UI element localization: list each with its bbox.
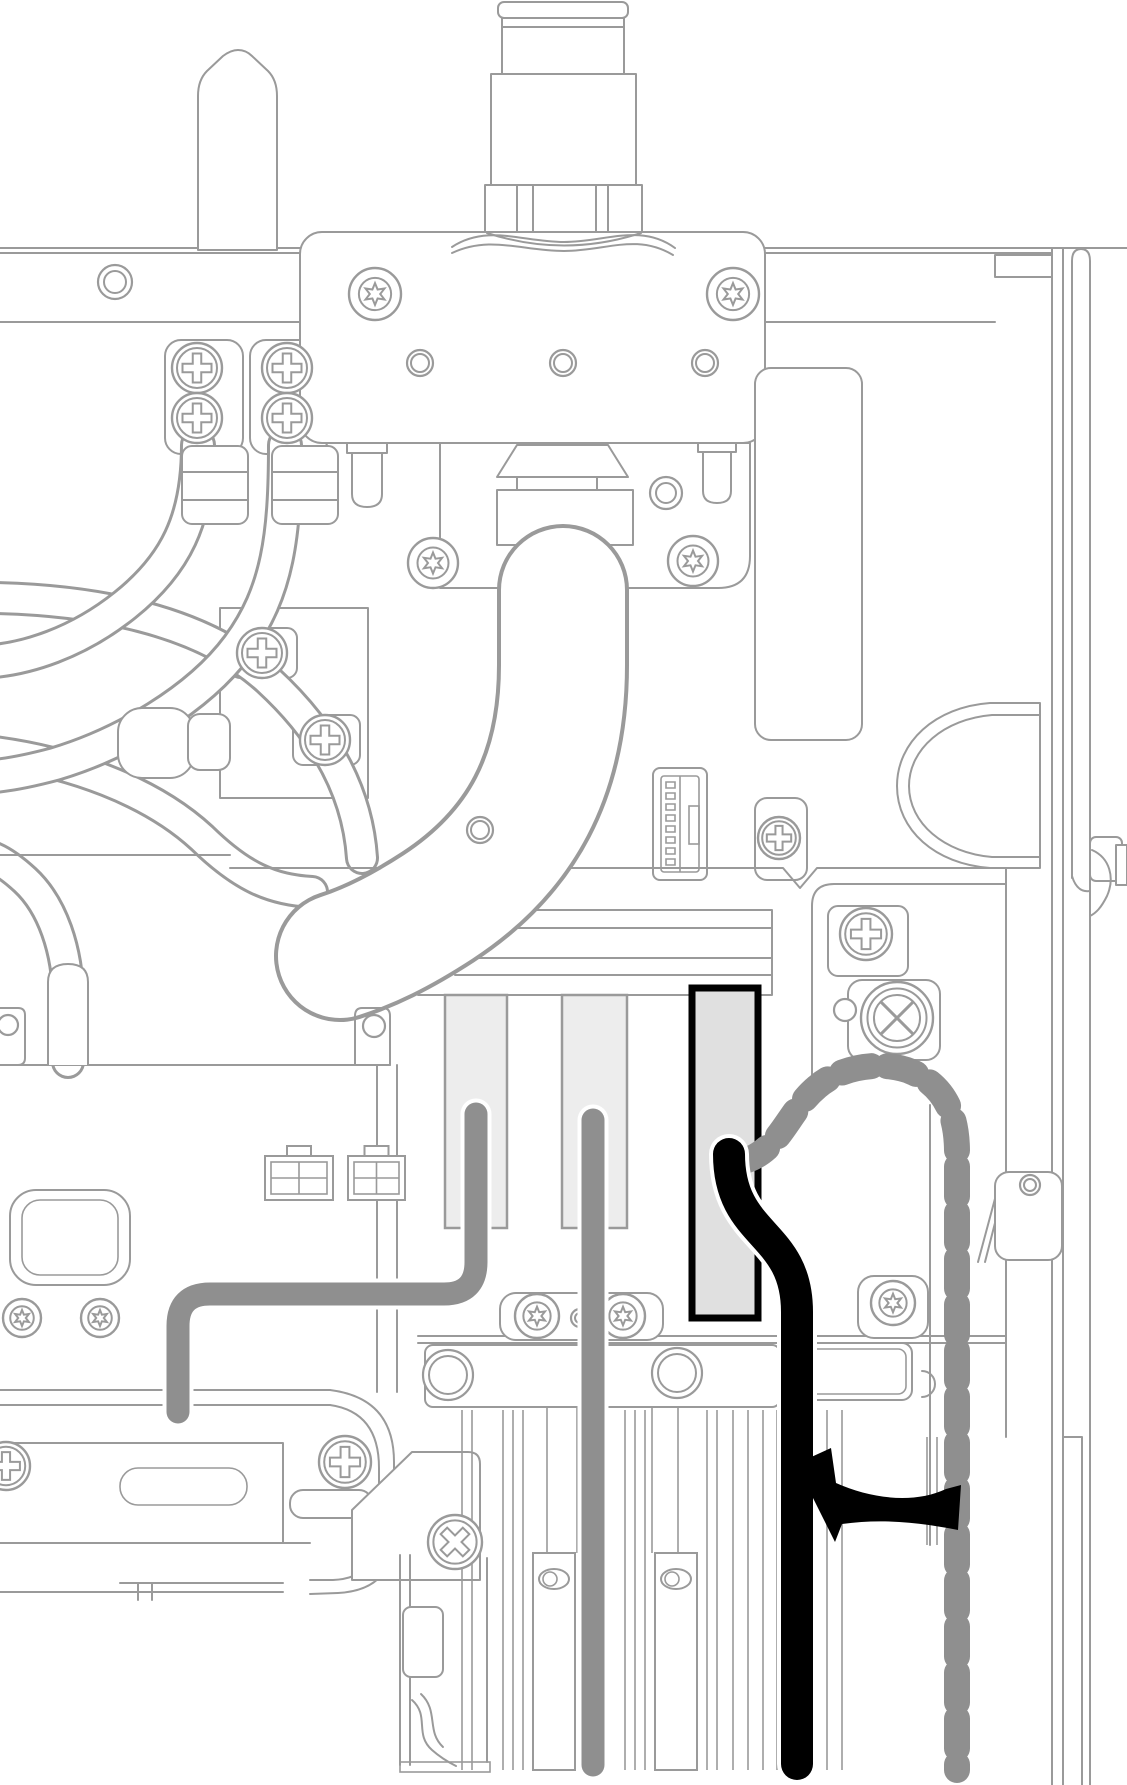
pin-header-connector bbox=[653, 768, 707, 880]
bigx-screw bbox=[861, 982, 933, 1054]
ring-hole bbox=[550, 350, 576, 376]
phillips-screw bbox=[237, 628, 287, 678]
mounting-bracket bbox=[300, 232, 765, 443]
ring-hole bbox=[423, 1350, 473, 1400]
phillips-screw bbox=[300, 715, 350, 765]
phillips-screw bbox=[0, 1442, 30, 1490]
phillips-screw bbox=[262, 393, 312, 443]
torx-screw bbox=[3, 1299, 41, 1337]
wide-hose bbox=[340, 590, 563, 956]
quick-connect-coupling bbox=[485, 2, 642, 232]
torx-screw bbox=[81, 1299, 119, 1337]
phillips-screw bbox=[172, 393, 222, 443]
torx-screw bbox=[515, 1294, 559, 1338]
cards-layer bbox=[533, 1553, 697, 1770]
card-guide bbox=[533, 1553, 575, 1770]
torx-screw bbox=[707, 268, 759, 320]
torx-screw bbox=[668, 536, 718, 586]
ring-hole bbox=[407, 350, 433, 376]
ring-hole bbox=[652, 1348, 702, 1398]
ring-hole bbox=[98, 265, 132, 299]
phillips-screw bbox=[758, 817, 800, 859]
bottom-connector-assembly bbox=[0, 1390, 490, 1772]
phillips-screw bbox=[840, 908, 892, 960]
torx-screw bbox=[349, 268, 401, 320]
d-shaped-handle bbox=[897, 703, 1040, 868]
ring-hole bbox=[650, 477, 682, 509]
torx-screw bbox=[871, 1281, 915, 1325]
phillips-screw bbox=[319, 1436, 371, 1488]
card-guide bbox=[655, 1553, 697, 1770]
chassis-latch bbox=[1090, 837, 1127, 916]
ring-hole bbox=[692, 350, 718, 376]
cross4-screw bbox=[428, 1515, 482, 1569]
connectors-layer bbox=[265, 1146, 405, 1200]
ring-hole bbox=[363, 1015, 385, 1037]
ring-hole bbox=[0, 1015, 18, 1035]
phillips-screw bbox=[172, 343, 222, 393]
side-panel bbox=[755, 368, 862, 740]
ring-hole bbox=[467, 817, 493, 843]
ring-hole bbox=[834, 999, 856, 1021]
left-lower-panel bbox=[0, 964, 397, 1392]
phillips-screw bbox=[262, 343, 312, 393]
ring-hole bbox=[1020, 1175, 1040, 1195]
torx-screw bbox=[408, 538, 458, 588]
power-connector-1 bbox=[265, 1146, 333, 1200]
alignment-post bbox=[198, 50, 277, 250]
routing-path-dashed bbox=[741, 1066, 957, 1770]
cable-routing-diagram bbox=[0, 0, 1127, 1785]
